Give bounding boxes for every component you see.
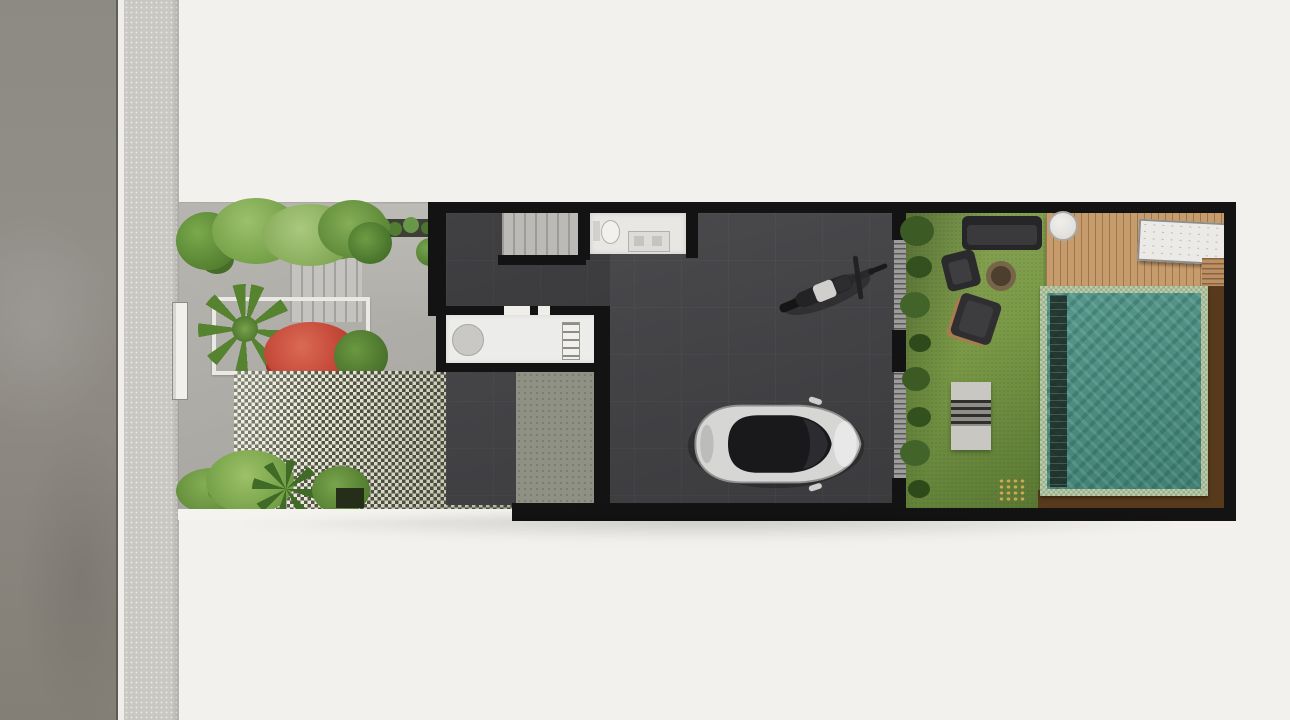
outdoor-sofa	[962, 216, 1042, 250]
toilet-tank	[593, 221, 600, 241]
gate-post	[172, 302, 188, 400]
staircase	[502, 213, 580, 257]
side-passage	[516, 372, 594, 505]
tree	[348, 222, 392, 264]
wall	[428, 202, 1236, 213]
bathroom-vanity	[628, 231, 670, 252]
bench	[951, 426, 991, 450]
wall	[498, 255, 586, 265]
basin	[634, 236, 644, 246]
wall	[892, 478, 907, 510]
lawn	[906, 213, 1046, 508]
wall	[428, 202, 446, 316]
wall	[594, 306, 610, 508]
sidewalk	[124, 0, 179, 720]
street	[0, 0, 118, 720]
car	[678, 396, 874, 492]
hedge	[900, 216, 934, 246]
yellow-flowers	[998, 478, 1026, 502]
fire-pit	[986, 261, 1016, 291]
page-background: { "scene_title": "Top-down architectural…	[0, 0, 1290, 720]
drop-shadow	[186, 515, 1230, 541]
toilet	[601, 220, 620, 244]
bench-table-set	[951, 382, 991, 450]
lounge-cushion	[958, 299, 995, 338]
door-opening	[504, 306, 530, 315]
planter-box	[336, 488, 364, 508]
sofa-seat	[967, 225, 1037, 245]
wall	[892, 330, 907, 372]
table-slats	[951, 400, 991, 426]
bench	[951, 382, 991, 400]
cooktop	[562, 322, 580, 360]
wall	[686, 202, 698, 258]
door-opening	[538, 306, 550, 315]
pool-water	[1047, 293, 1201, 489]
wall	[1224, 202, 1236, 521]
armchair-seat	[948, 258, 973, 285]
pool-shadow-lane	[1050, 295, 1067, 487]
round-table	[1048, 211, 1078, 241]
round-sink	[452, 324, 484, 356]
wall	[578, 204, 590, 260]
deck-steps	[1202, 258, 1224, 288]
wood-pool-surround	[1208, 286, 1224, 521]
